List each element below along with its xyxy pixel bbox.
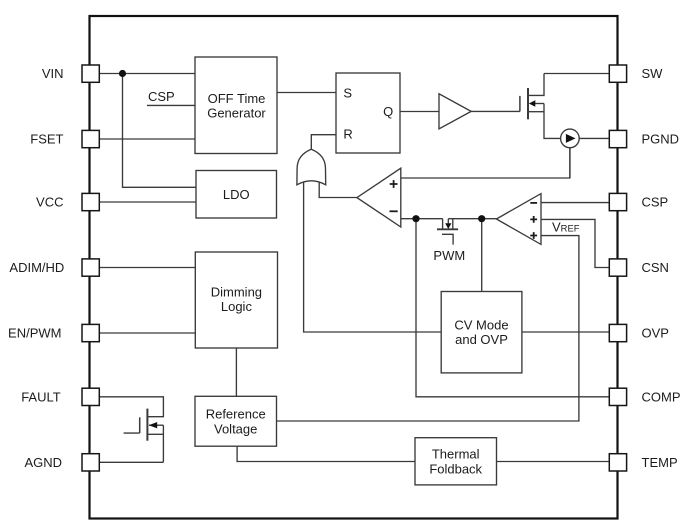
svg-text:SW: SW: [642, 66, 664, 81]
svg-text:CSP: CSP: [642, 195, 669, 210]
svg-text:Thermal: Thermal: [432, 447, 480, 462]
svg-text:PGND: PGND: [642, 132, 680, 147]
svg-text:PWM: PWM: [433, 248, 465, 263]
svg-text:VCC: VCC: [36, 195, 63, 210]
svg-text:VIN: VIN: [42, 66, 64, 81]
svg-text:Dimming: Dimming: [211, 285, 262, 300]
svg-text:ADIM/HD: ADIM/HD: [9, 260, 64, 275]
svg-text:TEMP: TEMP: [642, 455, 678, 470]
svg-text:Reference: Reference: [206, 407, 266, 422]
svg-text:Foldback: Foldback: [429, 461, 482, 476]
svg-text:Q: Q: [383, 104, 393, 119]
svg-text:and OVP: and OVP: [455, 332, 508, 347]
svg-text:S: S: [343, 86, 352, 101]
svg-text:OVP: OVP: [642, 326, 669, 341]
svg-text:FAULT: FAULT: [21, 390, 61, 405]
svg-text:EN/PWM: EN/PWM: [8, 326, 61, 341]
svg-text:VREF: VREF: [552, 220, 580, 235]
svg-text:OFF Time: OFF Time: [208, 91, 266, 106]
svg-text:Generator: Generator: [207, 105, 266, 120]
svg-text:CSP: CSP: [148, 89, 175, 104]
svg-text:COMP: COMP: [642, 390, 681, 405]
svg-text:CSN: CSN: [642, 260, 669, 275]
svg-text:FSET: FSET: [30, 132, 63, 147]
svg-text:Voltage: Voltage: [214, 421, 257, 436]
svg-text:CV Mode: CV Mode: [454, 318, 508, 333]
svg-text:Logic: Logic: [221, 299, 253, 314]
svg-text:LDO: LDO: [223, 187, 250, 202]
svg-text:R: R: [343, 127, 352, 142]
svg-text:AGND: AGND: [24, 455, 62, 470]
